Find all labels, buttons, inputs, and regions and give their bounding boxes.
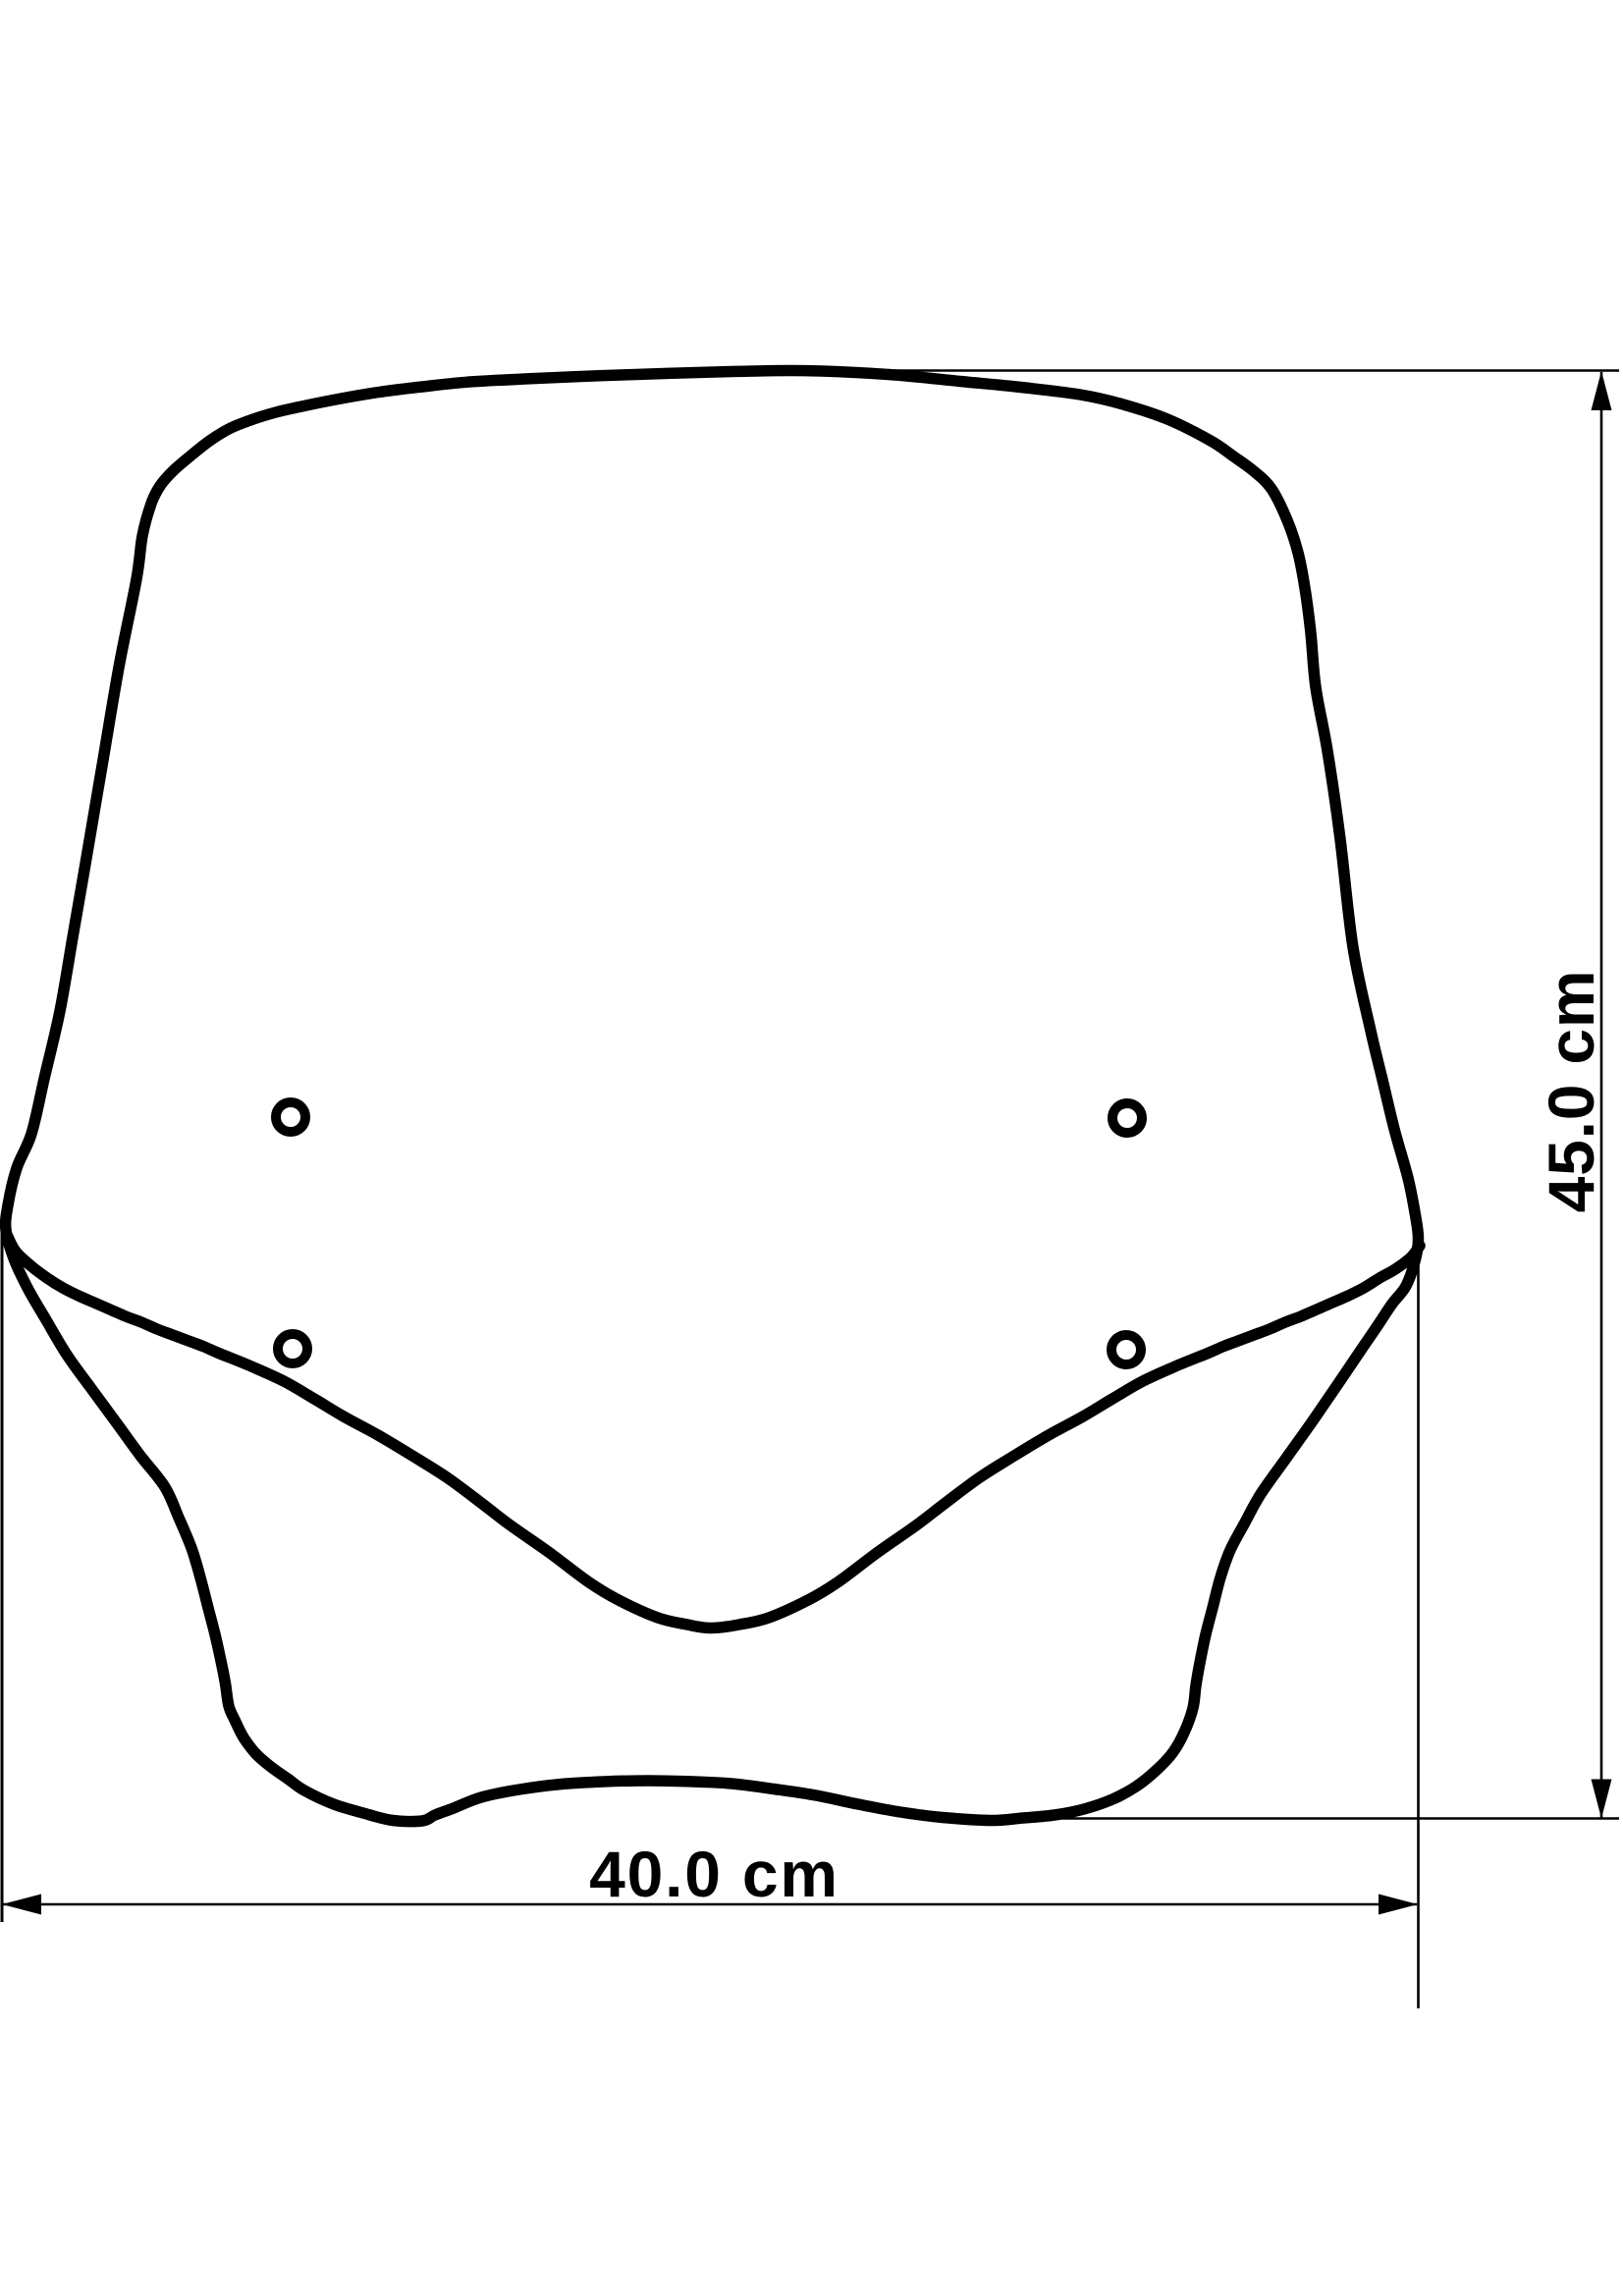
- svg-text:40.0 cm: 40.0 cm: [589, 1838, 839, 1910]
- svg-text:45.0 cm: 45.0 cm: [1535, 970, 1607, 1213]
